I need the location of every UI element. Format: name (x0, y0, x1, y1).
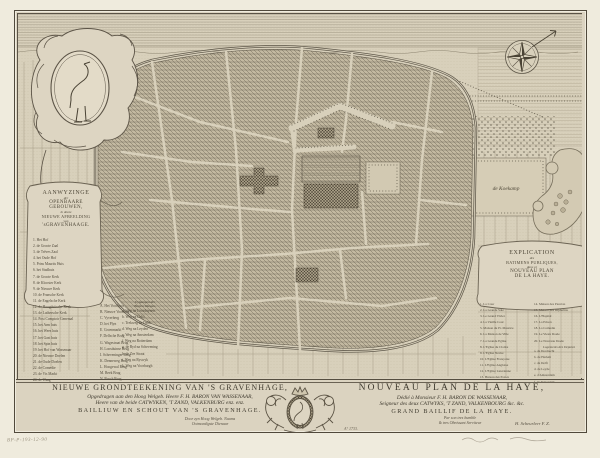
dutch-dedication-signoff: Door zyn Hoog Welgeb. Naams Ootmoedigste… (150, 416, 270, 426)
crown (292, 387, 308, 396)
koekamp-label: de Koekamp (493, 186, 520, 192)
collection-inscription: BP-P-193-12-90 (7, 438, 47, 444)
nl-building-legend-list: 1. Het Hof2. de Groote Zaal3. de Trêves … (33, 238, 93, 384)
nl-cartouche-line: 'sGRAVENHAAGE. (34, 223, 98, 228)
fr-legend-col1: 1. La Cour2. La Grande Sale3. Le Grand V… (480, 302, 530, 381)
lion-left-head (267, 397, 276, 406)
french-subtitle: GRAND BAILLIF DE LA HAYE. (324, 408, 580, 415)
engraved-map-sheet: de Koekamp (0, 0, 600, 458)
dedication-line: & tres Obeissant Serviteur (405, 420, 515, 425)
year-inscription: A° 1733. (344, 426, 358, 431)
engraver-signature: H. Scheurleer F. Z. (515, 421, 550, 426)
pencil-scribble (460, 434, 550, 444)
dedication-line: Ootmoedigste Dienaar (150, 421, 270, 426)
hofvijver-pond (302, 156, 360, 182)
fr-cartouche-title: EXPLICATION des BATIMENS PUBLIQUES, dans… (482, 250, 582, 279)
roads-legend-list: a. Weg na Loosduynenb. Weg na Delftc. Tr… (122, 309, 168, 370)
legend-item: k. Weg na Voorburgh (122, 364, 168, 370)
french-dedication-signoff: Par son tres humble & tres Obeissant Ser… (405, 415, 515, 425)
nl-cartouche-title: AANWYZINGE der OPENBAARE GEBOUWEN, in de… (34, 190, 98, 228)
french-title: NOUVEAU PLAN DE LA HAYE, (324, 383, 580, 393)
fr-legend-col2-list: 14. Maison des Pauvres15. Maison des Orp… (534, 302, 584, 345)
fr-cartouche-line: DE LA HAYE. (482, 274, 582, 279)
roads-legend: Uytgangen der Buyten Weegen. a. Weg na L… (122, 300, 168, 370)
coat-of-arms (258, 384, 342, 436)
fr-legend-col2: 14. Maison des Pauvres15. Maison des Orp… (534, 302, 584, 386)
french-dedication: Dédié à Monsieur F. H. BARON DE WASSENAA… (324, 395, 580, 401)
french-title-block: NOUVEAU PLAN DE LA HAYE, Dédié à Monsieu… (324, 383, 580, 415)
lion-right-head (325, 397, 334, 406)
french-dedication: Seigneur des deux CATWYKS, 'T ZAND, VALK… (324, 401, 580, 407)
